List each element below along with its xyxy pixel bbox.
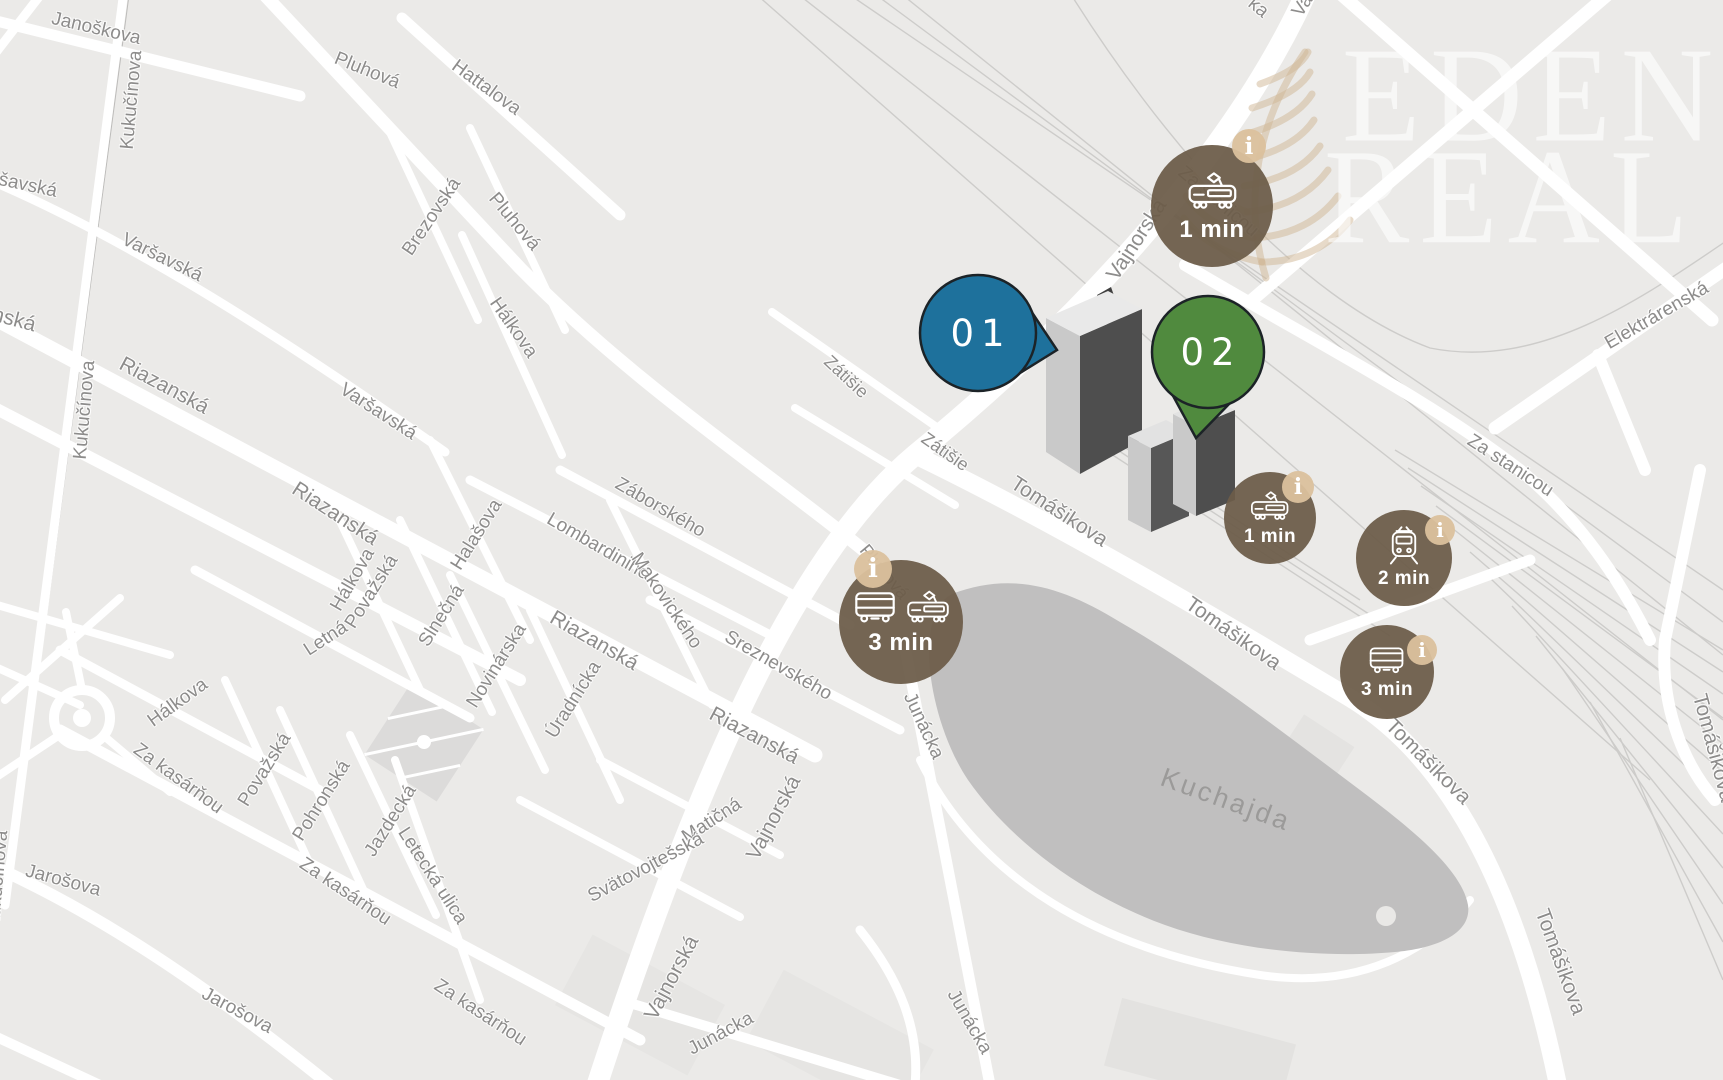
info-button[interactable]: i: [1407, 635, 1437, 665]
tram-icon: [905, 587, 951, 627]
badge-tram-1min-north[interactable]: 1 mini: [1151, 145, 1273, 267]
map-canvas: 0102 EDEN REAL JanoškovaKukučínovaPluhov…: [0, 0, 1723, 1080]
info-button[interactable]: i: [1282, 471, 1314, 503]
transit-time-label: 3 min: [1361, 679, 1413, 701]
badge-bus-tram-3min-west[interactable]: 3 mini: [839, 560, 963, 684]
info-button[interactable]: i: [1232, 129, 1266, 163]
badge-train-2min[interactable]: 2 mini: [1356, 510, 1452, 606]
badge-bus-3min-east[interactable]: 3 mini: [1340, 625, 1434, 719]
transit-time-label: 1 min: [1179, 216, 1244, 244]
info-button[interactable]: i: [1425, 515, 1455, 545]
bus-icon: [1367, 643, 1406, 677]
transit-time-label: 1 min: [1244, 526, 1296, 548]
bus-icon: [852, 587, 898, 627]
transit-badges-layer: 1 mini3 mini1 mini2 mini3 mini: [0, 0, 1723, 1080]
train-icon: [1381, 526, 1427, 566]
transit-time-label: 2 min: [1378, 568, 1430, 590]
badge-tram-1min-east[interactable]: 1 mini: [1224, 472, 1316, 564]
transit-time-label: 3 min: [868, 629, 933, 657]
info-button[interactable]: i: [854, 550, 892, 588]
tram-icon: [1186, 168, 1239, 214]
